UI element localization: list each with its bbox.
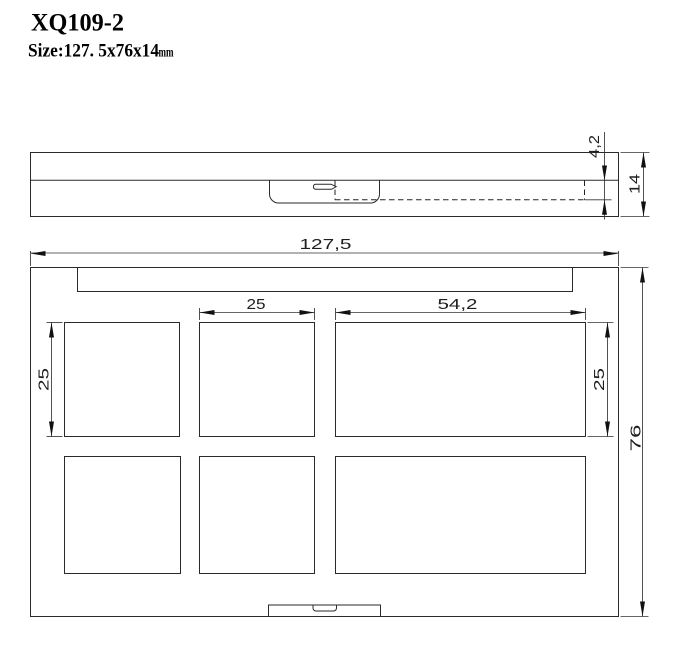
svg-text:127,5: 127,5 bbox=[300, 236, 352, 253]
svg-text:14: 14 bbox=[627, 174, 644, 194]
svg-text:Size:127. 5x76x14: Size:127. 5x76x14 bbox=[28, 41, 159, 62]
svg-text:76: 76 bbox=[628, 425, 645, 452]
svg-text:25: 25 bbox=[247, 296, 266, 313]
svg-text:25: 25 bbox=[36, 368, 53, 391]
svg-text:mm: mm bbox=[159, 46, 174, 61]
svg-text:XQ109-2: XQ109-2 bbox=[31, 10, 124, 37]
svg-text:54,2: 54,2 bbox=[438, 296, 478, 313]
svg-text:25: 25 bbox=[591, 368, 608, 391]
svg-text:4,2: 4,2 bbox=[586, 135, 603, 158]
